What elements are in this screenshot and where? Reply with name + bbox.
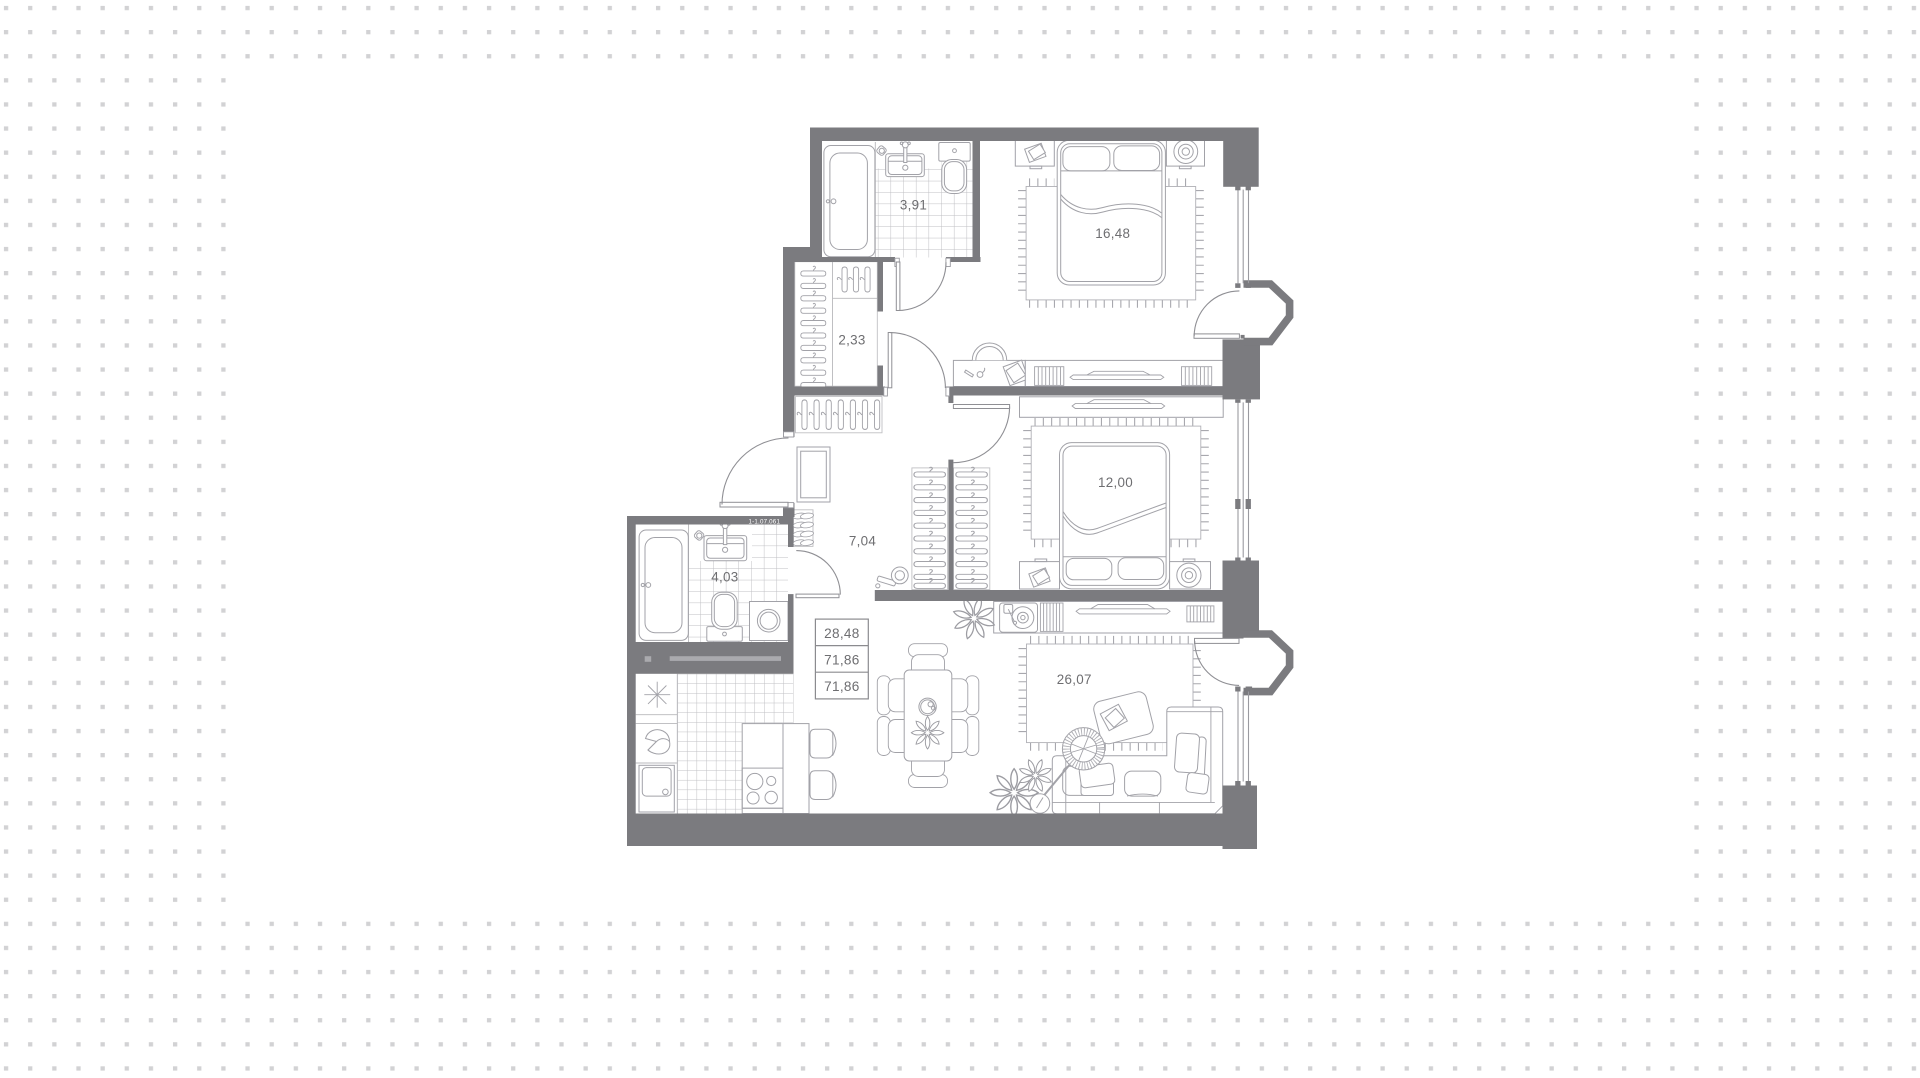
svg-text:28,48: 28,48: [824, 626, 860, 641]
svg-text:2,33: 2,33: [838, 333, 865, 348]
svg-text:7,04: 7,04: [849, 533, 877, 548]
svg-text:12,00: 12,00: [1098, 475, 1133, 490]
svg-text:71,86: 71,86: [824, 679, 860, 694]
svg-text:4,03: 4,03: [711, 570, 738, 585]
svg-text:16,48: 16,48: [1095, 226, 1130, 241]
svg-text:3,91: 3,91: [900, 197, 927, 212]
svg-text:71,86: 71,86: [824, 653, 860, 668]
svg-text:26,07: 26,07: [1057, 672, 1092, 687]
svg-text:1-1.07.061: 1-1.07.061: [749, 519, 781, 526]
